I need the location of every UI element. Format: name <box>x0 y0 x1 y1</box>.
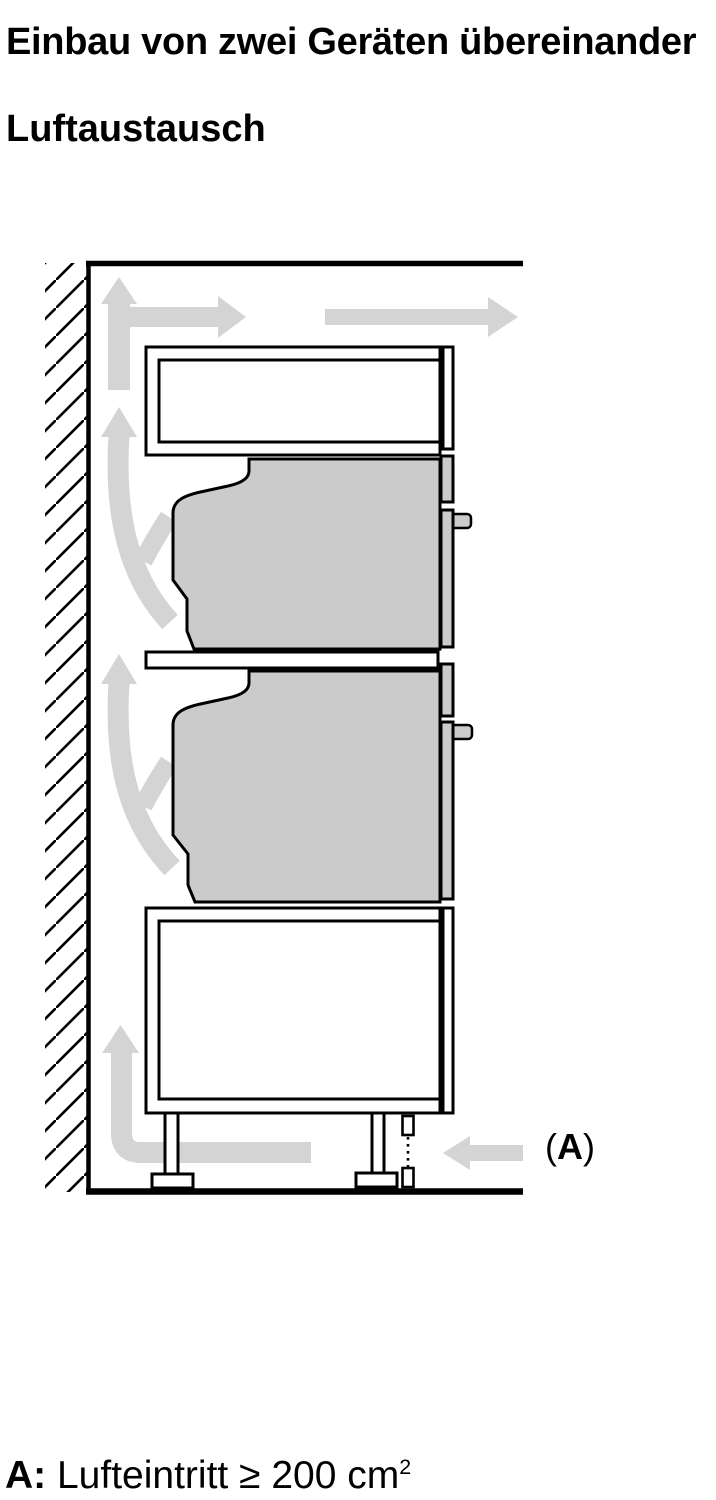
air-inlet-arrow-icon <box>443 1136 523 1170</box>
upper-appliance-control-panel <box>441 456 453 502</box>
left-leg <box>165 1113 178 1174</box>
airflow-l-arrow-bottom-head-icon <box>102 1025 139 1053</box>
air-inlet-label-close-paren: ) <box>583 1126 595 1167</box>
upper-appliance <box>173 456 471 649</box>
top-compartment <box>146 347 453 455</box>
airflow-curved-arrow-upper-stream-icon <box>143 517 169 561</box>
lower-appliance <box>173 664 472 902</box>
base-cabinet <box>146 908 453 1113</box>
left-foot <box>152 1174 193 1188</box>
airflow-curved-arrow-upper-head-icon <box>101 407 137 437</box>
intermediate-shelf <box>146 652 438 668</box>
air-inlet-label-open-paren: ( <box>545 1126 557 1167</box>
upper-appliance-door <box>441 510 453 647</box>
plinth-vent-lower-block <box>403 1168 414 1187</box>
legend-prefix: A: <box>5 1454 46 1497</box>
airflow-diagram <box>0 0 716 1500</box>
appliances <box>173 456 472 902</box>
airflow-up-arrow-top-icon <box>101 277 137 390</box>
airflow-curved-arrow-lower-head-icon <box>101 654 137 684</box>
wall-hatching <box>45 263 87 1192</box>
right-leg <box>372 1113 384 1173</box>
lower-appliance-control-panel <box>441 664 453 716</box>
lower-appliance-body <box>173 671 440 902</box>
legend-note: A: Lufteintritt ≥ 200 cm2 <box>5 1455 411 1498</box>
airflow-curved-arrow-lower-stream-icon <box>143 762 169 806</box>
airflow-right-arrow-outer-icon <box>325 297 518 337</box>
legend-superscript: 2 <box>399 1455 411 1479</box>
plinth-vent-upper-block <box>403 1116 414 1135</box>
air-inlet-label: (A) <box>545 1127 595 1167</box>
lower-appliance-door <box>441 722 453 899</box>
air-inlet-label-letter: A <box>557 1126 583 1167</box>
right-foot <box>356 1173 397 1187</box>
plinth-vent <box>403 1116 414 1187</box>
upper-appliance-body <box>173 459 440 649</box>
legend-body: Lufteintritt ≥ 200 cm <box>46 1454 399 1497</box>
